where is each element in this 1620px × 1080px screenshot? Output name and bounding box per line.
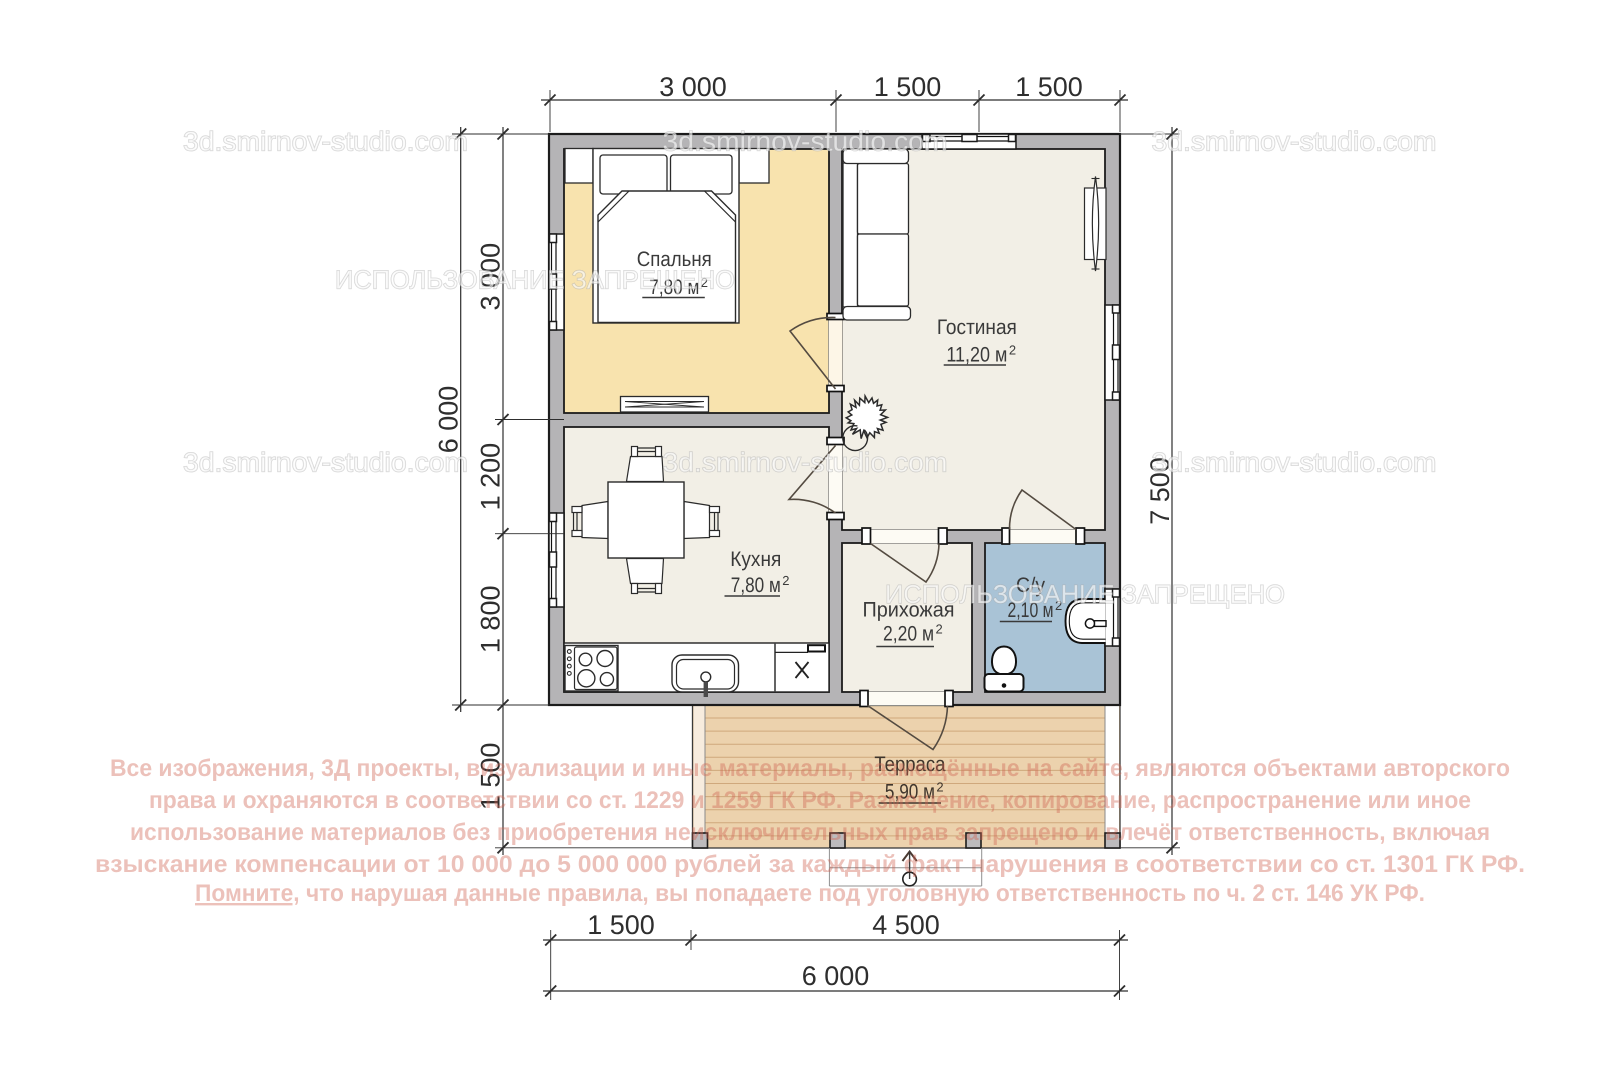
svg-text:11,20 м: 11,20 м	[946, 344, 1007, 367]
svg-text:2,20 м: 2,20 м	[883, 623, 934, 646]
svg-text:6 000: 6 000	[802, 961, 870, 991]
svg-text:7,80 м: 7,80 м	[731, 574, 781, 597]
svg-text:2: 2	[936, 622, 943, 637]
svg-text:3d.smirnov-studio.com: 3d.smirnov-studio.com	[1152, 448, 1437, 478]
svg-text:4 500: 4 500	[872, 910, 940, 940]
svg-text:3d.smirnov-studio.com: 3d.smirnov-studio.com	[663, 127, 948, 157]
svg-text:2: 2	[782, 573, 789, 588]
svg-text:Кухня: Кухня	[730, 548, 781, 571]
svg-text:Помните, что нарушая данные пр: Помните, что нарушая данные правила, вы …	[195, 880, 1425, 907]
svg-text:3d.smirnov-studio.com: 3d.smirnov-studio.com	[183, 127, 468, 157]
svg-text:3d.smirnov-studio.com: 3d.smirnov-studio.com	[183, 448, 468, 478]
svg-text:ИСПОЛЬЗОВАНИЕ ЗАПРЕЩЕНО: ИСПОЛЬЗОВАНИЕ ЗАПРЕЩЕНО	[885, 579, 1285, 609]
svg-text:1 500: 1 500	[587, 910, 655, 940]
svg-text:взыскание компенсации от 10 00: взыскание компенсации от 10 000 до 5 000…	[95, 851, 1525, 878]
svg-text:1 500: 1 500	[874, 72, 942, 102]
svg-text:2: 2	[1009, 343, 1016, 358]
svg-text:3 000: 3 000	[659, 72, 727, 102]
svg-text:права и охраняются в соответст: права и охраняются в соответствии со ст.…	[149, 787, 1471, 814]
svg-text:3d.smirnov-studio.com: 3d.smirnov-studio.com	[663, 448, 948, 478]
svg-text:6 000: 6 000	[434, 386, 464, 454]
svg-text:1 500: 1 500	[1015, 72, 1083, 102]
svg-text:использование материалов без п: использование материалов без приобретени…	[130, 819, 1490, 846]
svg-text:3d.smirnov-studio.com: 3d.smirnov-studio.com	[1152, 127, 1437, 157]
svg-text:Гостиная: Гостиная	[937, 316, 1017, 339]
svg-text:Все изображения, 3Д проекты, в: Все изображения, 3Д проекты, визуализаци…	[110, 755, 1510, 782]
svg-text:ИСПОЛЬЗОВАНИЕ ЗАПРЕЩЕНО: ИСПОЛЬЗОВАНИЕ ЗАПРЕЩЕНО	[335, 265, 735, 295]
svg-text:1 800: 1 800	[476, 586, 506, 654]
svg-text:1 200: 1 200	[476, 443, 506, 511]
